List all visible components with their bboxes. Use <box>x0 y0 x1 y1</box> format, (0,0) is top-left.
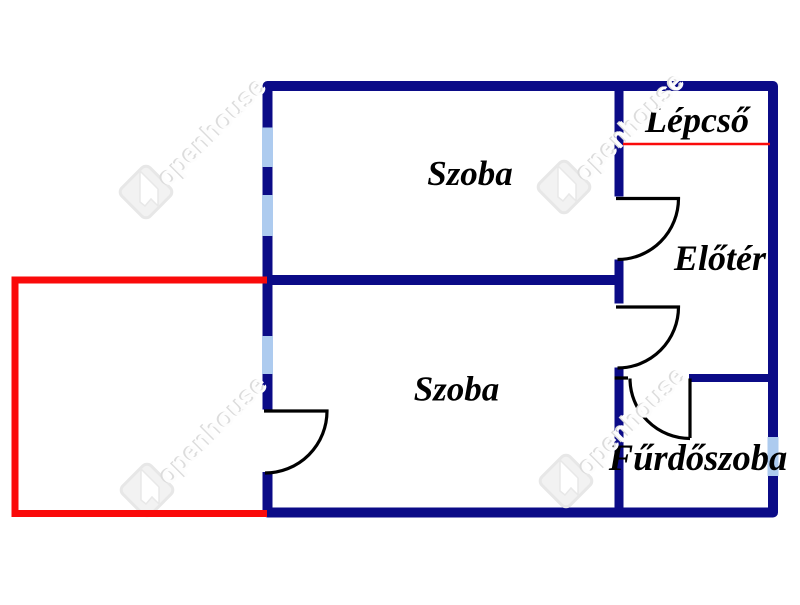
svg-text:Szoba: Szoba <box>427 154 513 193</box>
svg-text:Szoba: Szoba <box>414 370 500 409</box>
svg-text:Előtér: Előtér <box>673 238 767 278</box>
svg-text:Fűrdőszoba: Fűrdőszoba <box>608 437 788 478</box>
